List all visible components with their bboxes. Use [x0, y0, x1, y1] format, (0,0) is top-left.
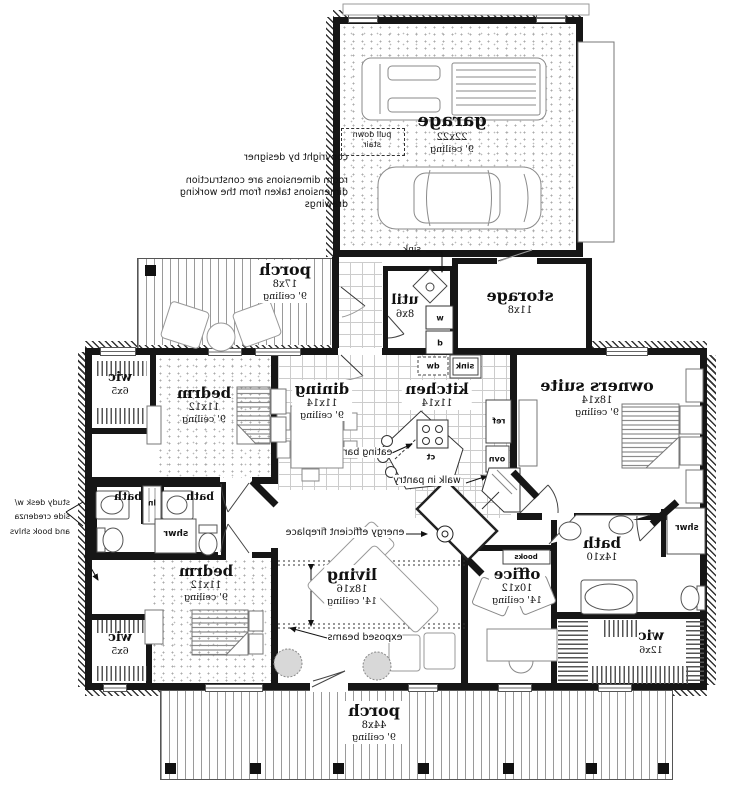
bedroom2-size: 11x12: [179, 580, 233, 592]
bath1-name: bath: [114, 490, 142, 503]
master-bath-name: bath: [583, 534, 621, 552]
shower-small-label: shwr: [164, 529, 189, 539]
side-porch-size: 17x8: [256, 279, 314, 291]
office-label: office 10x12 14' ceiling: [489, 565, 545, 606]
bath2-label: bath: [186, 490, 214, 503]
bedroom2-ceiling: 9' ceiling: [179, 592, 233, 603]
exposed-beams-label: exposed beams: [328, 632, 403, 643]
office-name: office: [489, 565, 545, 583]
study-line-2: side credenza: [6, 510, 70, 524]
floor-plan: copyright by designer room dimensions ar…: [0, 0, 750, 799]
study-desk-note: study desk w/ side credenza and book shl…: [6, 496, 70, 539]
wic1-size: 6x5: [108, 386, 132, 397]
master-bath-label: bath 14x10: [583, 534, 621, 564]
garage-label: garage 22x22 9' ceiling: [417, 110, 486, 155]
side-porch-ceiling: 9' ceiling: [256, 291, 314, 302]
wic1-label: wic 6x5: [108, 370, 132, 397]
linen-label: ln: [148, 499, 156, 508]
office-ceiling: 14' ceiling: [489, 595, 545, 606]
sink-label: sink: [403, 245, 421, 256]
living-ceiling: 14' ceiling: [324, 596, 380, 607]
garage-ceiling: 9' ceiling: [417, 144, 486, 155]
dining-size: 11x14: [292, 398, 352, 410]
eating-bar-label: eating bar: [344, 447, 393, 458]
note-line-3: drawings: [113, 199, 348, 211]
owners-suite-name: owners suite: [540, 376, 654, 395]
dining-name: dining: [292, 380, 352, 398]
bedroom1-ceiling: 9' ceiling: [177, 414, 231, 425]
garage-size: 22x22: [417, 132, 486, 144]
pull-down-stair-label: pull down stair: [353, 130, 392, 149]
owners-suite-label: owners suite 18x14 9' ceiling: [540, 376, 654, 419]
shower-master-label: shwr: [675, 523, 698, 533]
owners-suite-size: 18x14: [540, 395, 654, 407]
oven-label: ovn: [489, 455, 505, 464]
owners-suite-ceiling: 9' ceiling: [540, 407, 654, 418]
living-label: living 18x16 14' ceiling: [324, 565, 380, 608]
living-name: living: [324, 565, 380, 584]
kitchen-label: kitchen 11x14: [402, 380, 472, 410]
master-bath-size: 14x10: [583, 552, 621, 564]
study-leaders: [66, 502, 98, 580]
util-size: 8x6: [391, 309, 418, 321]
wic1-name: wic: [108, 370, 132, 386]
bedroom1-name: bedrm: [177, 384, 231, 402]
util-name: util: [391, 292, 418, 309]
garage-side-pad: [578, 42, 614, 242]
wic3-label: wic 12x6: [638, 628, 664, 656]
kitchen-name: kitchen: [402, 380, 472, 398]
living-size: 18x16: [324, 584, 380, 596]
copyright-note: copyright by designer room dimensions ar…: [113, 152, 348, 211]
wic3-size: 12x6: [638, 645, 664, 656]
wic2-size: 6x5: [108, 646, 132, 657]
car-icon: [378, 167, 541, 229]
bed-bedroom2: [145, 610, 263, 655]
wic3-name: wic: [638, 628, 664, 645]
study-line-3: and book shlvs: [6, 525, 70, 539]
note-line-1: room dimensions are construction: [113, 175, 348, 187]
side-porch-furniture: [160, 300, 282, 351]
pantry-leader: [466, 476, 487, 483]
roof-eave: [343, 4, 589, 15]
storage-size: 11x8: [486, 305, 553, 317]
front-porch-ceiling: 9' ceiling: [345, 732, 403, 743]
garage-name: garage: [417, 110, 486, 132]
note-line-2: dimensions taken from the working: [113, 187, 348, 199]
office-size: 10x12: [489, 583, 545, 595]
fireplace-label: energy efficient fireplace: [286, 527, 405, 538]
kitchen-size: 11x14: [402, 398, 472, 410]
dryer-label: d: [437, 339, 443, 348]
books-label: books: [514, 553, 537, 561]
copyright-line: copyright by designer: [113, 152, 348, 164]
wic2-label: wic 6x5: [108, 630, 132, 657]
entry-doors: [341, 287, 365, 381]
bedroom1-size: 11x12: [177, 402, 231, 414]
washer-label: w: [436, 314, 443, 323]
front-porch-size: 44x8: [345, 720, 403, 732]
dishwasher-label: dw: [426, 362, 439, 371]
front-porch-name: porch: [345, 701, 403, 720]
bedroom2-label: bedrm 11x12 9' ceiling: [179, 562, 233, 603]
fridge-label: ref: [493, 417, 506, 426]
storage-name: storage: [486, 286, 553, 305]
front-porch-label: porch 44x8 9' ceiling: [345, 701, 403, 744]
walk-in-pantry-label: walk in pantry: [393, 475, 461, 486]
dining-label: dining 11x14 9' ceiling: [292, 380, 352, 421]
bedroom2-name: bedrm: [179, 562, 233, 580]
bedroom1-label: bedrm 11x12 9' ceiling: [177, 384, 231, 425]
sink-leader-line: [426, 252, 442, 272]
bath2-name: bath: [186, 490, 214, 503]
storage-label: storage 11x8: [486, 286, 553, 317]
dining-ceiling: 9' ceiling: [292, 410, 352, 421]
side-porch-label: porch 17x8 9' ceiling: [256, 260, 314, 303]
side-porch-name: porch: [256, 260, 314, 279]
beams-leader: [290, 628, 327, 638]
study-line-1: study desk w/: [6, 496, 70, 510]
kitchen-sink-label: sink: [456, 362, 475, 371]
storage-door: [498, 250, 532, 261]
wic2-name: wic: [108, 630, 132, 646]
util-label: util 8x6: [391, 292, 418, 321]
bath1-label: bath: [114, 490, 142, 503]
cooktop-label: ct: [427, 453, 436, 462]
